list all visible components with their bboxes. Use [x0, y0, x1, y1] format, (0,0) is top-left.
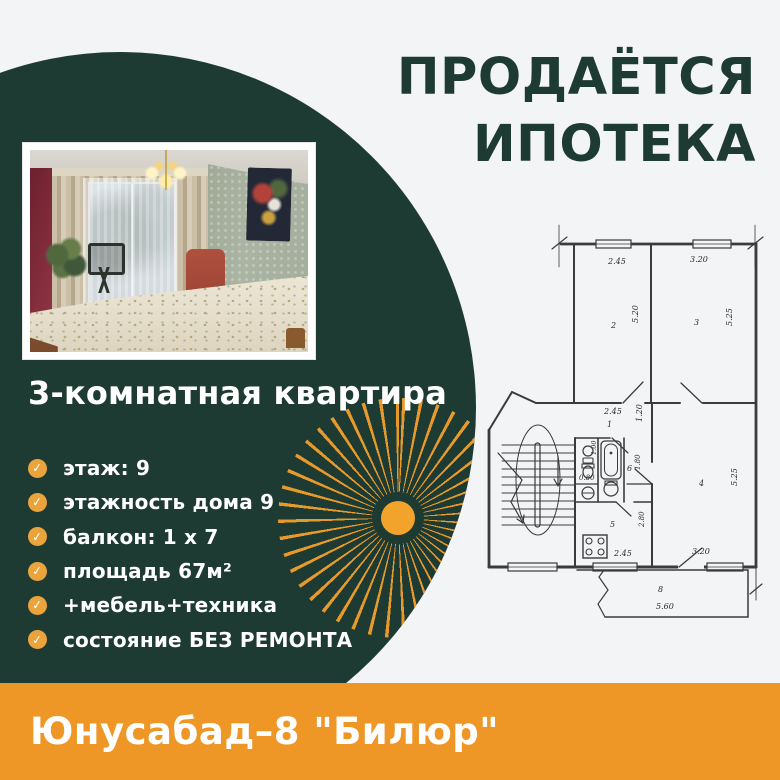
title-line-2: ИПОТЕКА: [397, 111, 756, 178]
check-icon: ✓: [28, 493, 47, 512]
feature-item-furniture: ✓ +мебель+техника: [28, 588, 352, 622]
floorplan-walls: [489, 225, 763, 567]
plan-dim-label: 2.45: [613, 549, 632, 558]
plan-dim-label: 5.60: [656, 602, 674, 611]
photo-black-chair-legs: [86, 267, 122, 293]
listing-heading: 3-комнатная квартира: [28, 374, 447, 412]
feature-label: этажность дома 9: [63, 490, 274, 514]
page-title: ПРОДАЁТСЯ ИПОТЕКА: [397, 44, 756, 179]
plan-dim-label: 1.20: [635, 404, 644, 422]
title-line-1: ПРОДАЁТСЯ: [397, 44, 756, 111]
photo-painting: [246, 168, 292, 242]
check-icon: ✓: [28, 562, 47, 581]
plan-dim-label: 1.00: [590, 441, 598, 455]
plan-dim-label: 2.45: [607, 257, 626, 266]
feature-item-condition: ✓ состояние БЕЗ РЕМОНТА: [28, 622, 352, 656]
plan-room-number: 1: [607, 420, 612, 429]
photo-stool: [286, 328, 305, 348]
feature-item-balcony: ✓ балкон: 1 х 7: [28, 520, 352, 554]
plan-dim-label: 5.25: [730, 468, 739, 486]
plan-dim-label: 5.25: [725, 308, 734, 326]
check-icon: ✓: [28, 459, 47, 478]
plan-dim-label: 3.20: [692, 547, 710, 556]
feature-label: +мебель+техника: [63, 593, 277, 617]
feature-label: состояние БЕЗ РЕМОНТА: [63, 628, 352, 652]
plan-room-number: 8: [658, 585, 663, 594]
plan-room-number: 6: [627, 464, 632, 473]
plan-room-number: 2: [610, 321, 616, 330]
check-icon: ✓: [28, 630, 47, 649]
floorplan-stairs: [498, 425, 574, 535]
sunburst-core: [381, 501, 415, 535]
floorplan: 2.45 3.20 2 5.20 3 5.25 2.45 1 1.20 1.00…: [478, 222, 778, 662]
plan-dim-label: 0.80: [579, 474, 595, 482]
floorplan-windows: [508, 240, 743, 572]
plan-dim-label: 1.80: [634, 454, 642, 470]
plan-room-number: 4: [698, 479, 704, 488]
feature-label: площадь 67м²: [63, 559, 232, 583]
apartment-photo: [22, 142, 316, 360]
feature-item-area: ✓ площадь 67м²: [28, 554, 352, 588]
plan-dim-label: 5.20: [631, 305, 640, 323]
feature-label: балкон: 1 х 7: [63, 525, 218, 549]
location-label: Юнусабад–8 "Билюр": [30, 710, 499, 753]
plan-dim-label: 3.20: [690, 255, 708, 264]
feature-item-building-floors: ✓ этажность дома 9: [28, 485, 352, 519]
check-icon: ✓: [28, 527, 47, 546]
feature-item-floor: ✓ этаж: 9: [28, 451, 352, 485]
plan-room-number: 3: [694, 318, 699, 327]
photo-chandelier: [141, 150, 191, 190]
feature-label: этаж: 9: [63, 456, 150, 480]
footer-bar: Юнусабад–8 "Билюр": [0, 683, 780, 780]
plan-dim-label: 2.45: [603, 407, 622, 416]
feature-list: ✓ этаж: 9 ✓ этажность дома 9 ✓ балкон: 1…: [28, 451, 352, 657]
plan-dim-label: 2.80: [638, 511, 646, 528]
check-icon: ✓: [28, 596, 47, 615]
poster: 2.45 3.20 2 5.20 3 5.25 2.45 1 1.20 1.00…: [0, 0, 780, 780]
photo-scene: [30, 150, 308, 352]
plan-room-number: 5: [610, 520, 615, 529]
floorplan-fixtures: [582, 441, 621, 558]
photo-plant: [44, 235, 88, 286]
